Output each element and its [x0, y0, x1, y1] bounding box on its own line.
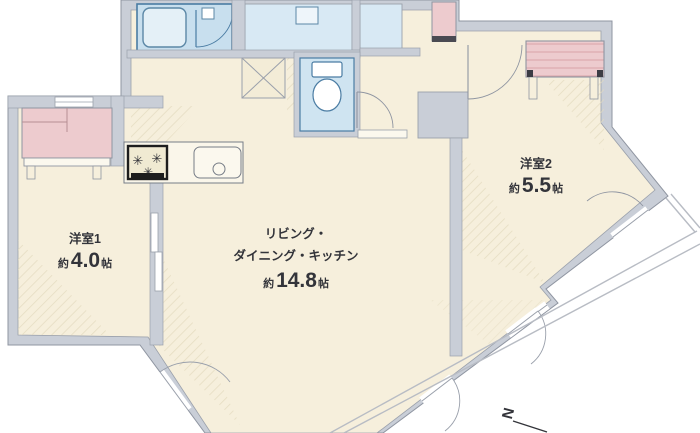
toilet-icon — [312, 62, 342, 77]
stove-icon: ✳ ✳ ✳ — [128, 146, 167, 179]
room2-name: 洋室2 — [520, 156, 552, 171]
wall — [360, 48, 420, 56]
svg-text:✳: ✳ — [133, 153, 144, 168]
floor-plan-svg: ✳ ✳ ✳ — [0, 0, 700, 433]
svg-text:✳: ✳ — [152, 151, 163, 166]
room2-partition — [450, 138, 462, 356]
washing-machine-icon — [296, 7, 318, 24]
closet-sliding-door — [24, 158, 110, 166]
entry-closet — [432, 2, 456, 42]
ldk-name-line2: ダイニング・キッチン — [233, 248, 358, 263]
wall — [232, 0, 245, 56]
room1-name: 洋室1 — [69, 231, 101, 246]
powder-room — [360, 4, 402, 49]
wall — [111, 96, 124, 166]
floor-plan-image: ✳ ✳ ✳ — [0, 0, 700, 433]
bath-shelf-icon — [202, 8, 214, 19]
pipe-shaft — [242, 58, 285, 98]
pillar — [418, 92, 468, 138]
bathtub-icon — [143, 8, 186, 47]
room1-partition — [150, 158, 163, 345]
ldk-name-line1: リビング・ — [265, 226, 328, 241]
wall — [352, 0, 360, 56]
hall-threshold — [358, 130, 407, 138]
kitchen-counter: ✳ ✳ ✳ — [124, 142, 243, 183]
sink-icon — [194, 147, 241, 178]
